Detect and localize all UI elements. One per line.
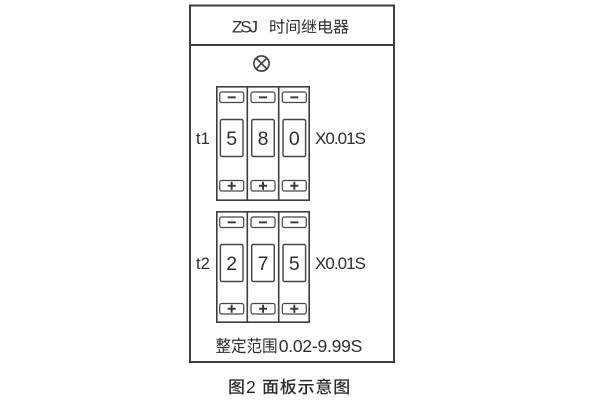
- svg-text:ZSJ: ZSJ: [232, 18, 258, 37]
- svg-text:t1: t1: [196, 130, 210, 148]
- svg-text:5: 5: [289, 253, 300, 275]
- svg-text:2: 2: [226, 253, 237, 275]
- svg-text:0.02-9.99S: 0.02-9.99S: [279, 336, 363, 356]
- svg-text:0: 0: [289, 128, 300, 150]
- svg-text:7: 7: [258, 253, 269, 275]
- svg-text:X0.01S: X0.01S: [315, 254, 366, 273]
- svg-text:5: 5: [226, 128, 237, 150]
- svg-text:t2: t2: [196, 255, 210, 273]
- svg-text:2: 2: [246, 377, 256, 397]
- svg-text:X0.01S: X0.01S: [315, 129, 366, 148]
- svg-text:8: 8: [258, 128, 269, 150]
